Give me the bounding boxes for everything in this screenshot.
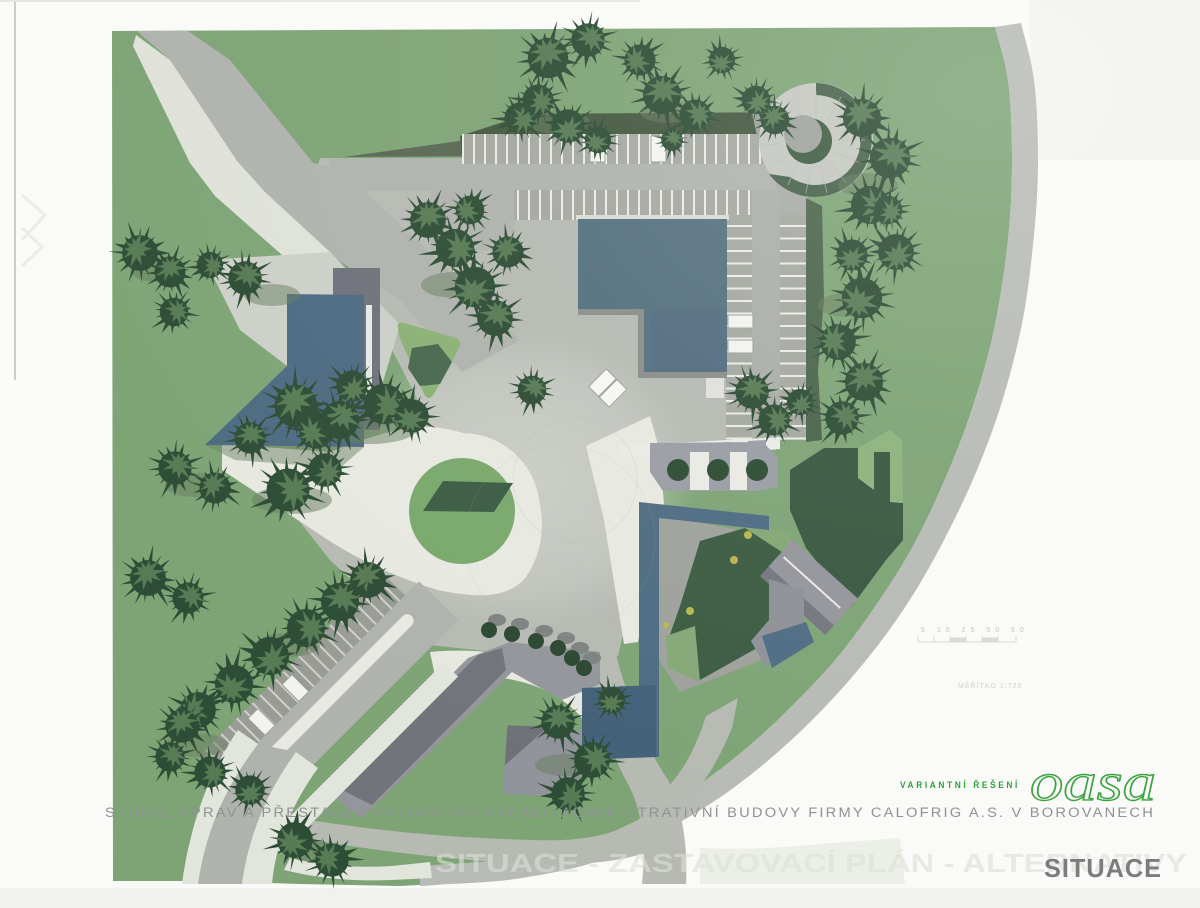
svg-text:oasa: oasa bbox=[1030, 752, 1156, 812]
svg-text:VARIANTNÍ ŘEŠENÍ: VARIANTNÍ ŘEŠENÍ bbox=[900, 779, 1020, 791]
svg-text:STUDIE ÚPRAV A PŘESTAVBY VSTU: STUDIE ÚPRAV A PŘESTAVBY VSTUPNÍHO AREÁL… bbox=[105, 805, 1155, 820]
svg-text:MĚŘÍTKO 1:720: MĚŘÍTKO 1:720 bbox=[958, 681, 1022, 690]
svg-text:SITUACE: SITUACE bbox=[1044, 853, 1162, 883]
svg-text:5 10 25 50 60: 5 10 25 50 60 bbox=[921, 627, 1029, 634]
